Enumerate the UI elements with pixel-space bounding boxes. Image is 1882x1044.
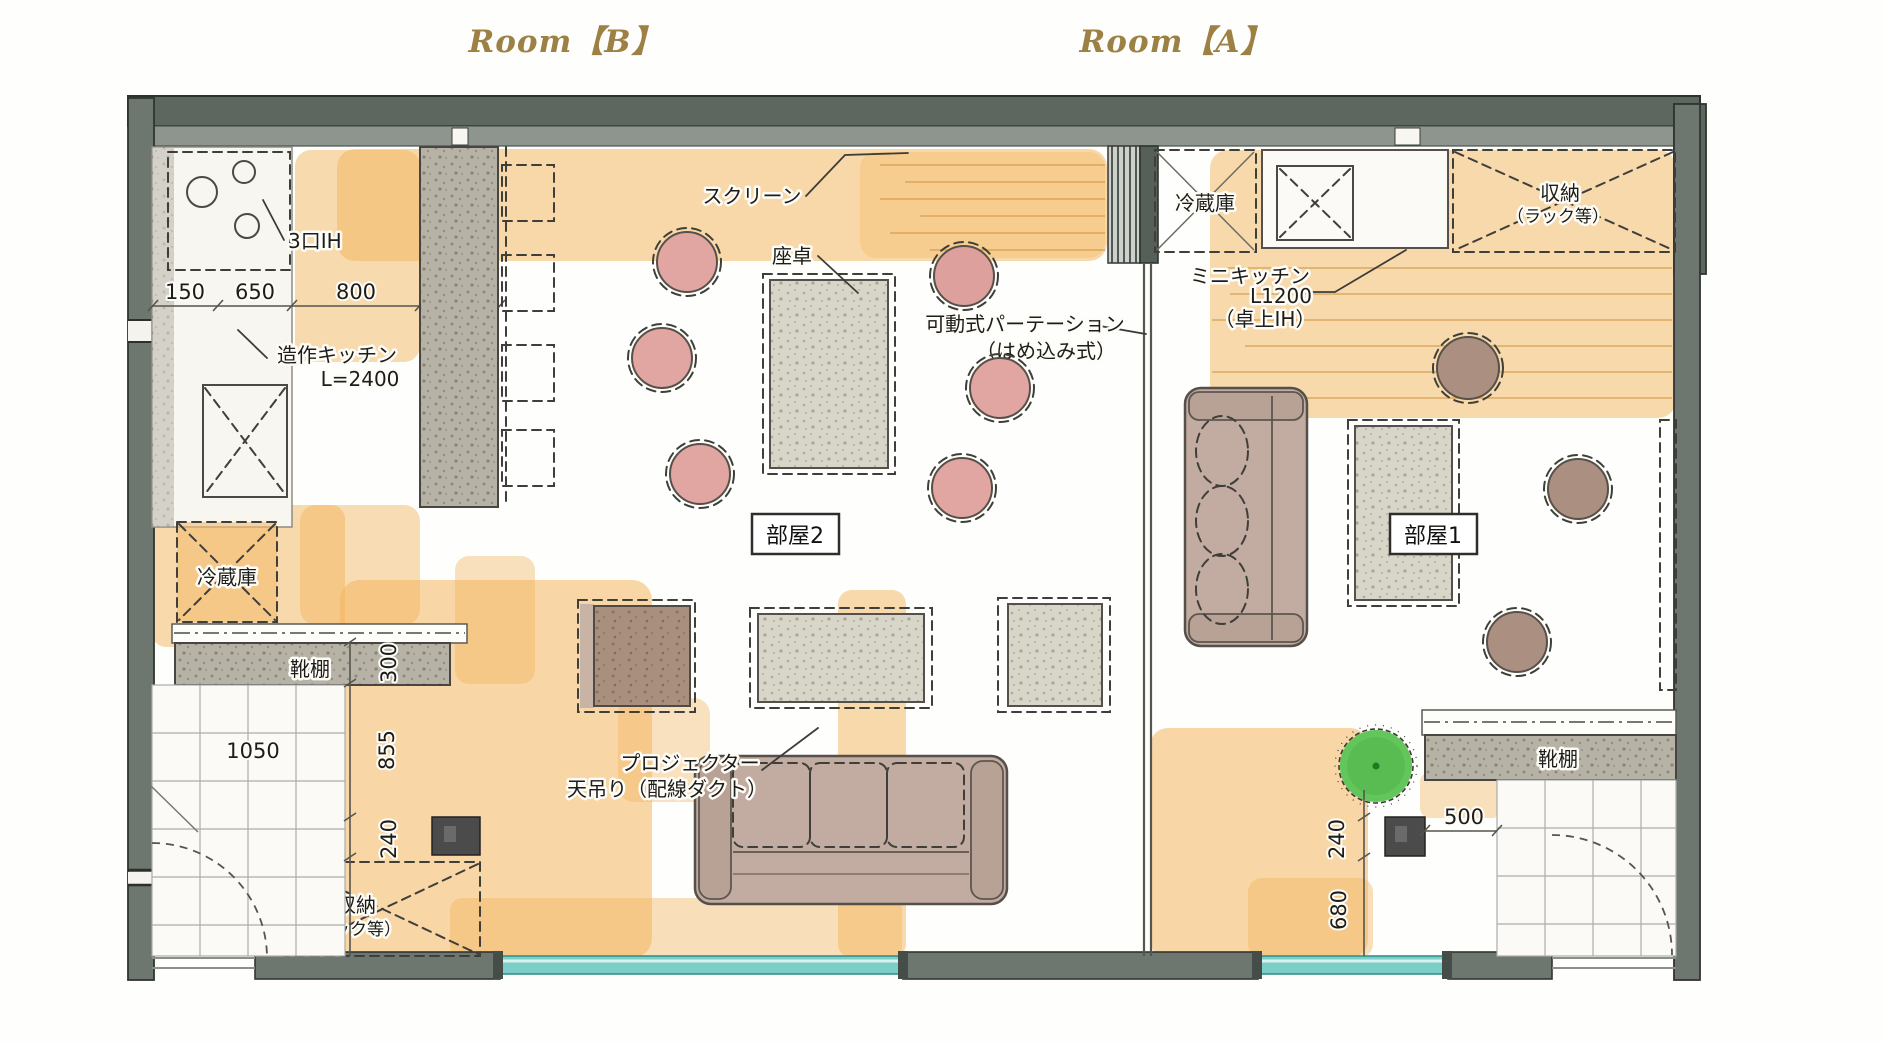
stool bbox=[502, 345, 554, 401]
dim-1050: 1050 bbox=[226, 739, 279, 763]
lounge-table bbox=[758, 614, 924, 702]
partition-panel-stack bbox=[1108, 146, 1140, 263]
stove-label: 3口IH bbox=[288, 229, 342, 253]
dim-240-a: 240 bbox=[1325, 819, 1349, 859]
kitchen-length-label: L=2400 bbox=[321, 367, 400, 391]
armchair bbox=[1008, 604, 1102, 706]
dim-300: 300 bbox=[377, 643, 401, 683]
top-wall bbox=[128, 96, 1700, 126]
plant bbox=[1335, 725, 1417, 807]
window-band bbox=[500, 956, 903, 974]
kitchen-label: 造作キッチン bbox=[277, 343, 397, 367]
low-table-label: 座卓 bbox=[772, 244, 812, 268]
armchair bbox=[594, 606, 690, 706]
room-a-title: Room【A】 bbox=[1079, 24, 1273, 60]
column-highlight bbox=[444, 826, 456, 842]
fridge-room-b: 冷蔵庫 bbox=[177, 522, 277, 622]
floor-plan-drawing: 可動式パーテーション （はめ込み式） 3口IH 150 650 800 500 … bbox=[0, 0, 1882, 1044]
shoe-shelf-b-label: 靴棚 bbox=[290, 657, 330, 681]
room-b-tag: 部屋2 bbox=[766, 524, 824, 549]
mini-kitchen-ih: （卓上IH） bbox=[1215, 307, 1316, 331]
room-a-tag: 部屋1 bbox=[1404, 524, 1462, 549]
projector-label-2: 天吊り（配線ダクト） bbox=[567, 777, 767, 801]
sofa-arm bbox=[1189, 392, 1303, 420]
dim-650: 650 bbox=[235, 280, 275, 304]
cushion bbox=[1483, 608, 1551, 676]
sofa-arm bbox=[971, 761, 1003, 899]
window-band bbox=[1258, 956, 1448, 974]
dim-855: 855 bbox=[375, 730, 399, 770]
wall-jamb-gap bbox=[128, 872, 154, 884]
mini-kitchen-length: L1200 bbox=[1250, 284, 1312, 308]
dim-500-a: 500 bbox=[1444, 805, 1484, 829]
bottom-wall-segment bbox=[903, 952, 1258, 979]
stool bbox=[502, 430, 554, 486]
cushion bbox=[666, 440, 734, 508]
dim-680: 680 bbox=[1327, 890, 1351, 930]
low-table bbox=[770, 280, 888, 468]
partition-label: 可動式パーテーション bbox=[925, 312, 1125, 336]
titles: Room【B】 Room【A】 bbox=[467, 24, 1272, 60]
entrance-tiles-a bbox=[1497, 780, 1676, 956]
column-highlight bbox=[1395, 826, 1407, 842]
projector-label: プロジェクター bbox=[620, 751, 759, 775]
cushion bbox=[928, 454, 996, 522]
storage-a-label: 収納 bbox=[1540, 181, 1580, 205]
cushion bbox=[1544, 455, 1612, 523]
cushion bbox=[966, 354, 1034, 422]
kitchen-counter-edge bbox=[152, 147, 174, 527]
storage-a-label-2: （ラック等） bbox=[1507, 207, 1609, 227]
floor-plan-page: 可動式パーテーション （はめ込み式） 3口IH 150 650 800 500 … bbox=[0, 0, 1882, 1044]
dim-800: 800 bbox=[336, 280, 376, 304]
top-wall-inner-band bbox=[152, 126, 1700, 146]
sofa-room-a bbox=[1185, 388, 1307, 646]
armchair-arm bbox=[580, 604, 594, 708]
cushion bbox=[628, 324, 696, 392]
sofa-arm bbox=[1189, 614, 1303, 642]
dim-150: 150 bbox=[165, 280, 205, 304]
island-counter bbox=[420, 147, 498, 507]
room-b-title: Room【B】 bbox=[467, 24, 663, 60]
wall-joint bbox=[452, 128, 468, 145]
wall-joint bbox=[1395, 128, 1420, 145]
dim-240-b: 240 bbox=[377, 819, 401, 859]
fridge-b-label: 冷蔵庫 bbox=[197, 565, 257, 589]
right-wall bbox=[1674, 104, 1700, 980]
entrance-tiles: 1050 bbox=[150, 685, 345, 956]
stool bbox=[502, 255, 554, 311]
shoe-shelf-a-label: 靴棚 bbox=[1538, 747, 1578, 771]
left-wall bbox=[128, 98, 154, 980]
fridge-a-label: 冷蔵庫 bbox=[1175, 191, 1235, 215]
wall-jamb-gap bbox=[128, 320, 154, 342]
screen-label: スクリーン bbox=[703, 184, 802, 208]
